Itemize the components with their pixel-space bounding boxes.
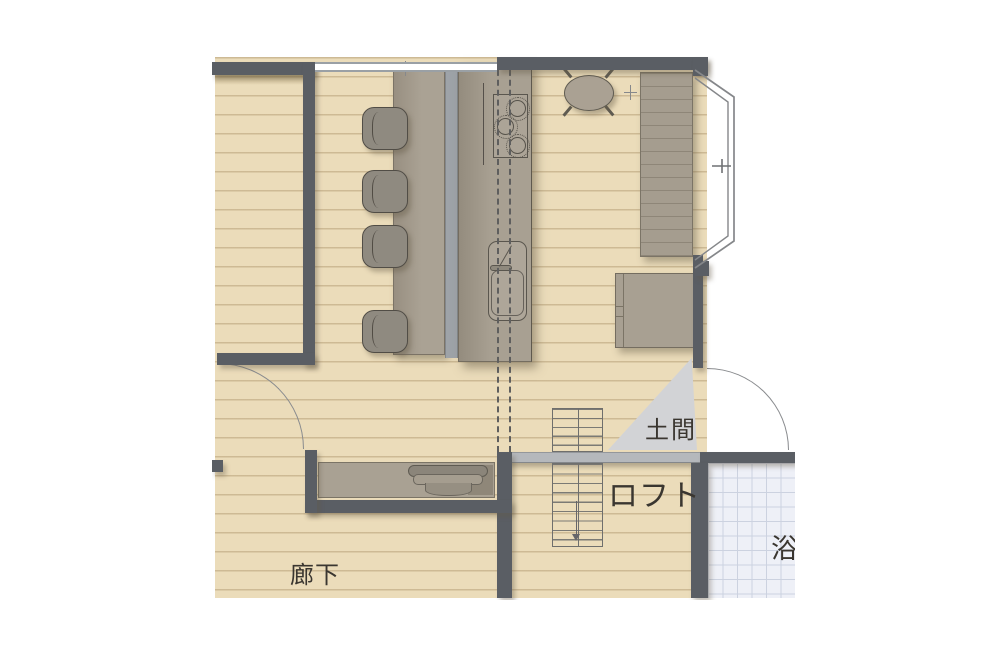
- table-top: [564, 75, 614, 111]
- wall-left-room-bottom: [217, 353, 315, 365]
- counter-stool: [362, 170, 408, 213]
- loft-edge-beam: [502, 452, 700, 463]
- wall-top-left: [212, 62, 315, 75]
- floor-plan-canvas: 土間 ロフト 廊下 浴: [0, 0, 1000, 669]
- wall-bath-top: [700, 452, 795, 463]
- stairs-upper-flight: [552, 408, 603, 452]
- entry-door-swing-icon: [707, 368, 789, 450]
- sink-basin-icon: [491, 270, 524, 316]
- counter-stool: [362, 225, 408, 268]
- counter-divider-strip: [445, 68, 458, 358]
- stairs-down-arrow-icon: [576, 501, 577, 539]
- dimension-cross-mark: [624, 85, 637, 100]
- stove-burner-icon: [509, 100, 526, 117]
- loft-outline-dashed-right: [509, 60, 511, 452]
- room-label-loft: ロフト: [608, 480, 701, 513]
- stove-burner-icon: [497, 118, 514, 135]
- wall-top-right: [497, 57, 707, 70]
- table-leg: [562, 106, 572, 117]
- wall-left-room-right: [303, 62, 315, 365]
- round-table: [558, 69, 618, 115]
- room-label-bath: 浴: [771, 535, 795, 565]
- counter-stool: [362, 107, 408, 150]
- room-label-doma: 土間: [645, 417, 697, 443]
- bay-window-icon: [690, 65, 752, 280]
- floor-plan: 土間 ロフト 廊下 浴: [212, 45, 795, 600]
- wall-stairs-left: [497, 452, 512, 598]
- counter-stool: [362, 310, 408, 353]
- room-label-corridor: 廊下: [290, 562, 340, 588]
- wall-shadow: [215, 75, 303, 85]
- loft-outline-dashed-left: [497, 60, 499, 452]
- top-window: [315, 62, 497, 72]
- window-side-counter: [640, 72, 693, 257]
- bath-tile-floor: [708, 463, 795, 598]
- wall-desk-nook-bottom: [305, 500, 512, 513]
- desk-chair-front: [425, 483, 472, 496]
- stove-burner-icon: [509, 137, 526, 154]
- wall-left-edge-stub: [212, 460, 223, 472]
- wall-desk-nook-left: [305, 450, 317, 513]
- side-cabinet: [615, 273, 695, 348]
- table-leg: [604, 106, 614, 117]
- counter-edge-line: [483, 83, 484, 165]
